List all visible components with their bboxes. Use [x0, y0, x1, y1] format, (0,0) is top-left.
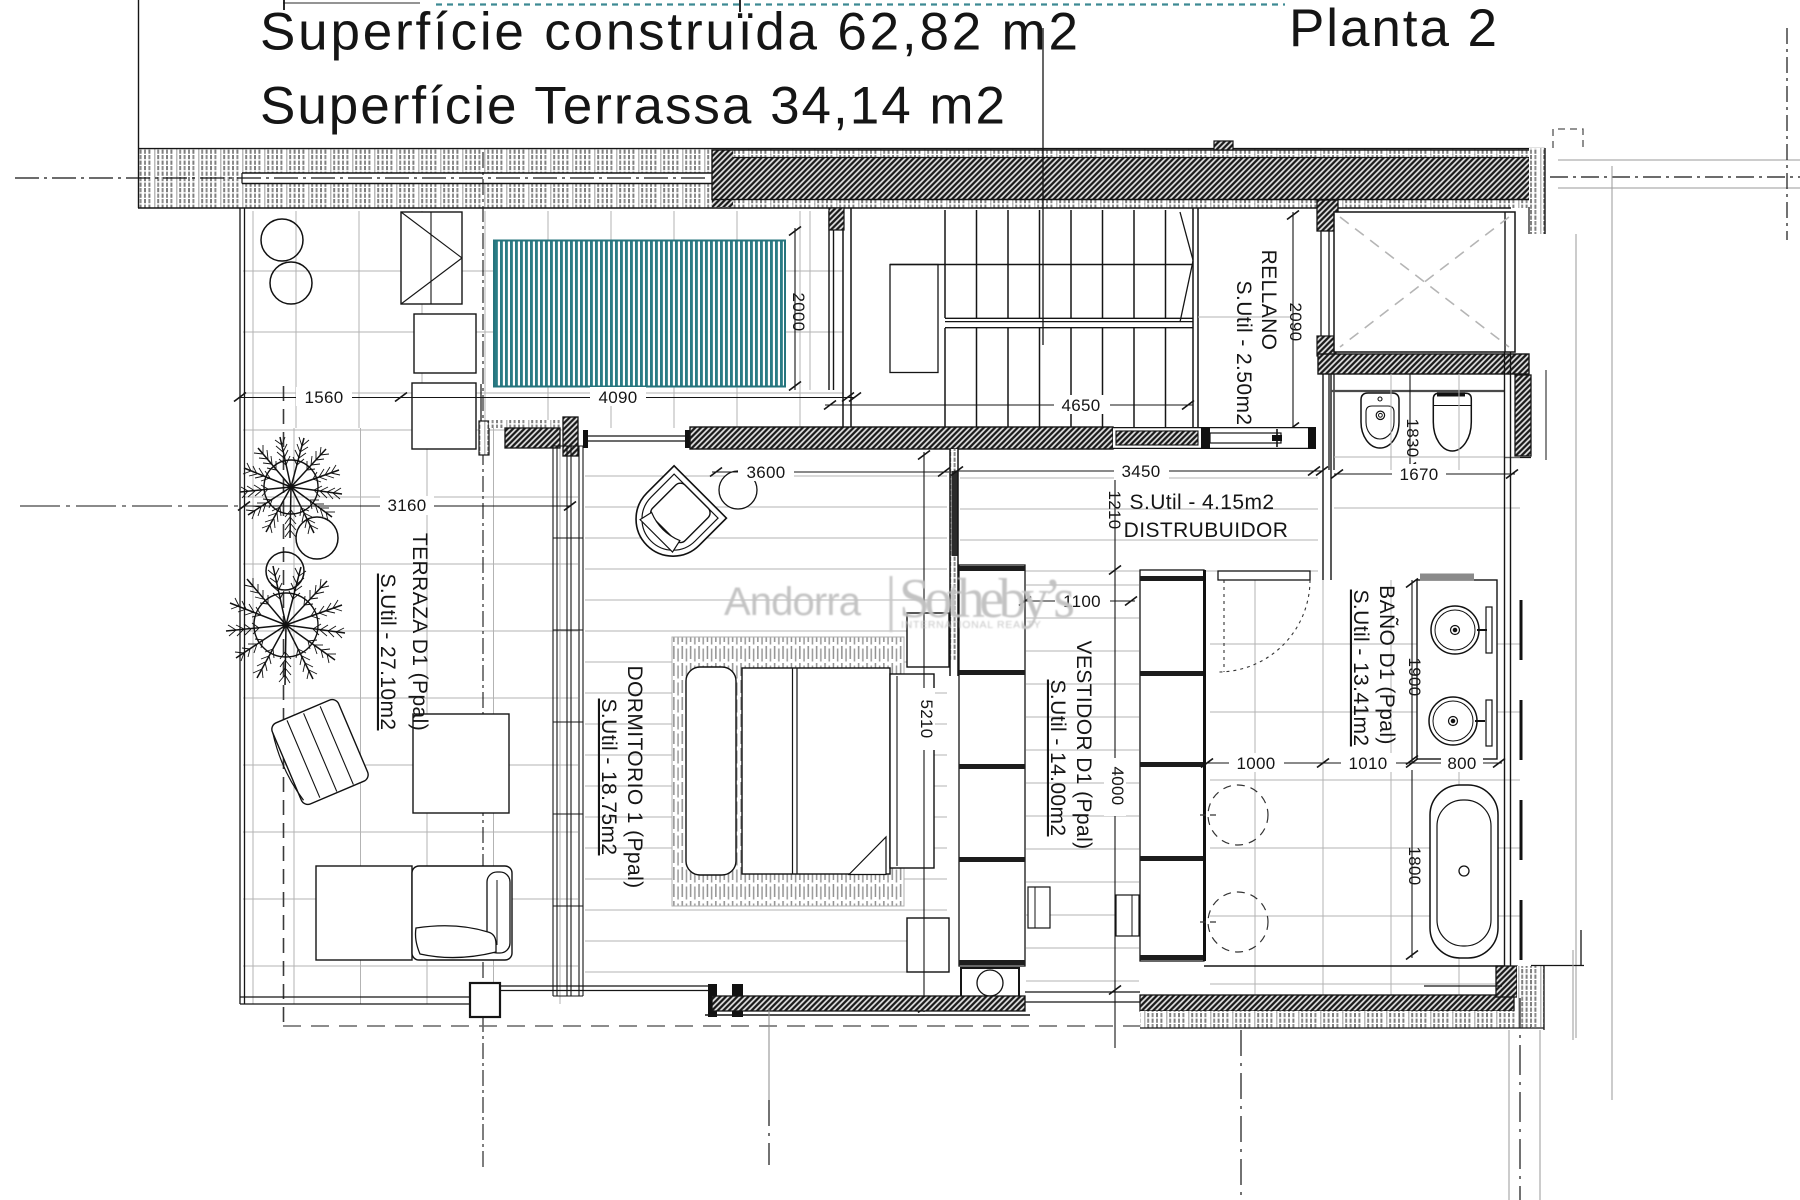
- svg-text:800: 800: [1447, 754, 1476, 773]
- svg-text:1900: 1900: [1405, 657, 1424, 696]
- svg-text:Andorra: Andorra: [724, 580, 862, 624]
- svg-text:S.Util - 18.75m2: S.Util - 18.75m2: [597, 699, 620, 856]
- svg-text:DORMITORIO 1 (Ppal): DORMITORIO 1 (Ppal): [623, 665, 646, 888]
- svg-text:Superfície construïda 62,82 m2: Superfície construïda 62,82 m2: [260, 3, 1078, 62]
- svg-text:INTERNATIONAL REALTY: INTERNATIONAL REALTY: [901, 619, 1043, 631]
- svg-text:1800: 1800: [1405, 846, 1424, 885]
- svg-text:2000: 2000: [789, 292, 808, 331]
- svg-text:TERRAZA D1 (Ppal): TERRAZA D1 (Ppal): [408, 533, 431, 731]
- svg-text:4000: 4000: [1108, 766, 1127, 805]
- svg-text:1210: 1210: [1105, 490, 1124, 529]
- svg-text:3450: 3450: [1121, 462, 1160, 481]
- svg-text:DISTRUBUIDOR: DISTRUBUIDOR: [1124, 519, 1289, 542]
- svg-text:BAÑO D1 (Ppal): BAÑO D1 (Ppal): [1375, 585, 1399, 745]
- svg-text:1670: 1670: [1399, 465, 1438, 484]
- svg-text:S.Util - 2.50m2: S.Util - 2.50m2: [1232, 281, 1255, 426]
- svg-text:4650: 4650: [1061, 396, 1100, 415]
- svg-text:4090: 4090: [598, 388, 637, 407]
- svg-text:VESTIDOR D1 (Ppal): VESTIDOR D1 (Ppal): [1072, 640, 1095, 849]
- svg-text:1010: 1010: [1348, 754, 1387, 773]
- svg-text:S.Util - 4.15m2: S.Util - 4.15m2: [1130, 491, 1275, 514]
- svg-text:Superfície Terrassa 34,14 m2: Superfície Terrassa 34,14 m2: [260, 77, 1005, 136]
- svg-text:1000: 1000: [1236, 754, 1275, 773]
- svg-text:S.Util - 27.10m2: S.Util - 27.10m2: [376, 574, 399, 731]
- svg-text:S.Util - 13.41m2: S.Util - 13.41m2: [1349, 590, 1372, 747]
- svg-text:2090: 2090: [1286, 302, 1305, 341]
- svg-text:1830: 1830: [1403, 418, 1422, 457]
- svg-text:RELLANO: RELLANO: [1257, 250, 1280, 351]
- svg-text:1560: 1560: [304, 388, 343, 407]
- svg-text:S.Util - 14.00m2: S.Util - 14.00m2: [1046, 680, 1069, 837]
- svg-text:5210: 5210: [917, 699, 936, 738]
- svg-text:3160: 3160: [387, 496, 426, 515]
- svg-text:3600: 3600: [746, 463, 785, 482]
